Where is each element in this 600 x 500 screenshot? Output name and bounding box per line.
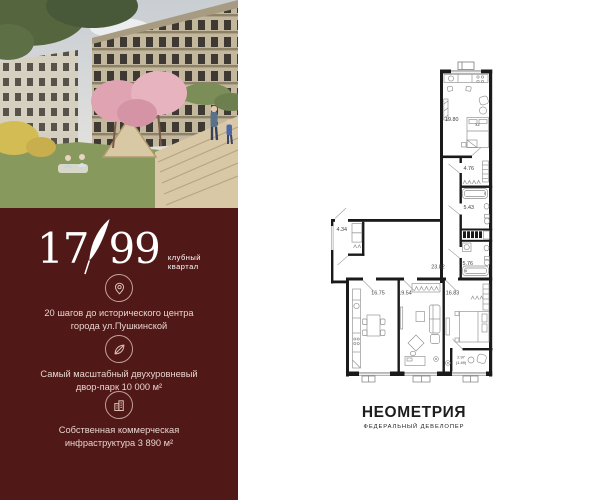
ac-baskets	[362, 376, 478, 382]
feature-location-line2: города ул.Пушкинской	[0, 320, 238, 333]
label-bedroom: 16.83	[446, 291, 460, 297]
logo-tagline: клубный квартал	[168, 253, 201, 271]
label-living: 19.54	[398, 291, 412, 297]
kitchen-furniture	[353, 289, 386, 368]
floor-plan: 19.80 х2 4.76 5.43 5.76 23.82 4.34 16.75…	[320, 50, 505, 390]
logo-tagline-line1: клубный	[168, 253, 201, 262]
label-bath2: 5.76	[463, 261, 474, 267]
leaf-icon	[105, 335, 133, 363]
feature-commercial-line1: Собственная коммерческая	[0, 424, 238, 437]
label-room-top: 19.80	[445, 117, 459, 123]
label-storage: 4.34	[337, 227, 348, 233]
logo-number-17: 17	[37, 228, 88, 270]
bathroom2-fixtures	[463, 243, 490, 276]
storage-furniture	[352, 224, 362, 249]
label-kitchen: 16.75	[371, 291, 385, 297]
courtyard-photo	[0, 0, 238, 208]
feather-icon	[83, 218, 113, 276]
label-wardrobe: 4.76	[464, 166, 475, 172]
room-labels: 19.80 х2 4.76 5.43 5.76 23.82 4.34 16.75…	[337, 117, 481, 365]
feature-commercial: Собственная коммерческая инфраструктура …	[0, 391, 238, 450]
brand-panel: 17 99 клубный квартал 20 шагов до истори…	[0, 208, 238, 500]
feature-park-line1: Самый масштабный двухуровневый	[0, 368, 238, 381]
top-balcony	[458, 62, 474, 70]
buildings-icon	[105, 391, 133, 419]
label-bed: х2	[475, 122, 480, 127]
studio-furniture	[444, 75, 489, 148]
label-balcony-reduced: (1.49)	[456, 360, 467, 365]
logo-number-99: 99	[108, 228, 159, 270]
wardrobe-furniture	[463, 161, 489, 184]
feature-commercial-line2: инфраструктура 3 890 м²	[0, 437, 238, 450]
courtyard-render	[0, 0, 238, 208]
location-pin-icon	[105, 274, 133, 302]
developer-name: НЕОМЕТРИЯ	[324, 404, 504, 422]
laundry-niche	[463, 231, 490, 239]
label-balcony: 2.97	[457, 355, 465, 360]
brochure-page: 17 99 клубный квартал 20 шагов до истори…	[0, 0, 600, 500]
feature-location: 20 шагов до исторического центра города …	[0, 274, 238, 333]
logo-1799: 17 99 клубный квартал	[0, 220, 238, 278]
developer-logo: НЕОМЕТРИЯ ФЕДЕРАЛЬНЫЙ ДЕВЕЛОПЕР	[324, 404, 504, 430]
feature-location-line1: 20 шагов до исторического центра	[0, 307, 238, 320]
feature-location-text: 20 шагов до исторического центра города …	[0, 307, 238, 333]
label-bath1: 5.43	[464, 205, 475, 211]
label-hall: 23.82	[431, 265, 445, 271]
developer-tagline: ФЕДЕРАЛЬНЫЙ ДЕВЕЛОПЕР	[324, 424, 504, 430]
feature-commercial-text: Собственная коммерческая инфраструктура …	[0, 424, 238, 450]
feature-park: Самый масштабный двухуровневый двор-парк…	[0, 335, 238, 394]
balcony-furniture	[468, 354, 487, 364]
logo-tagline-line2: квартал	[168, 262, 199, 271]
